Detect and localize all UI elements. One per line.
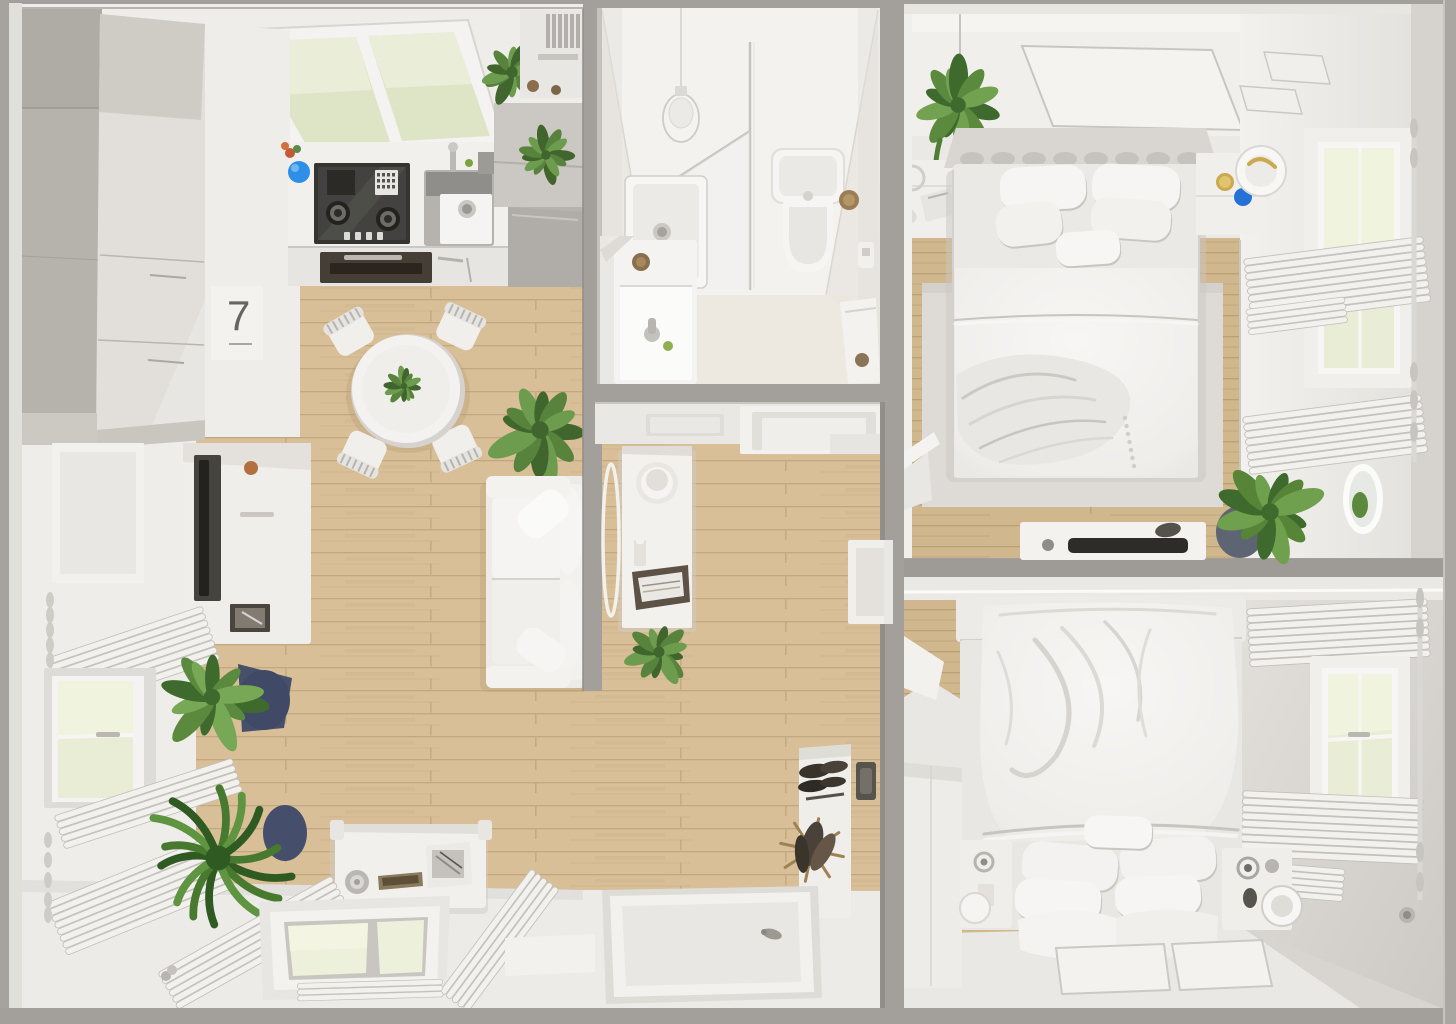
svg-text:7: 7: [227, 292, 250, 339]
